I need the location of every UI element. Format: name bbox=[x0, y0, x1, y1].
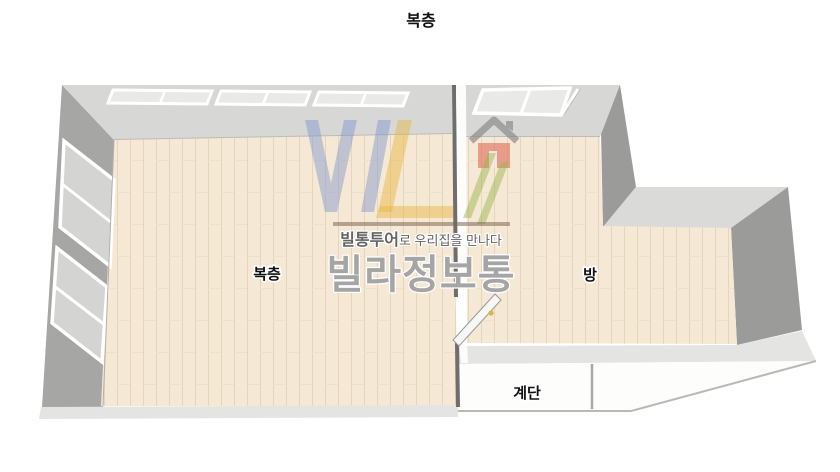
watermark-brand: 빌라정보통 bbox=[327, 253, 516, 297]
watermark-rule bbox=[333, 222, 510, 226]
page-title: 복층 bbox=[406, 12, 436, 30]
door-handle-icon bbox=[488, 310, 493, 315]
label-stairs: 계단 bbox=[513, 385, 541, 402]
floorplan-canvas: 복층 bbox=[0, 0, 840, 472]
room-window bbox=[474, 88, 581, 115]
floorplan-page: 복층 bbox=[0, 0, 840, 472]
label-room: 방 bbox=[583, 266, 597, 284]
loft-window-strip bbox=[108, 90, 408, 106]
logo-bar-yellow bbox=[376, 206, 453, 218]
label-loft: 복층 bbox=[253, 266, 281, 283]
watermark-tagline-brand: 빌통투어 bbox=[340, 231, 399, 249]
loft-bottom-wall bbox=[39, 405, 458, 419]
stairs-area bbox=[458, 361, 816, 411]
watermark-tagline-rest: 로 우리집을 만나다 bbox=[399, 233, 502, 248]
watermark-tagline: 빌통투어로 우리집을 만나다 bbox=[340, 231, 502, 249]
